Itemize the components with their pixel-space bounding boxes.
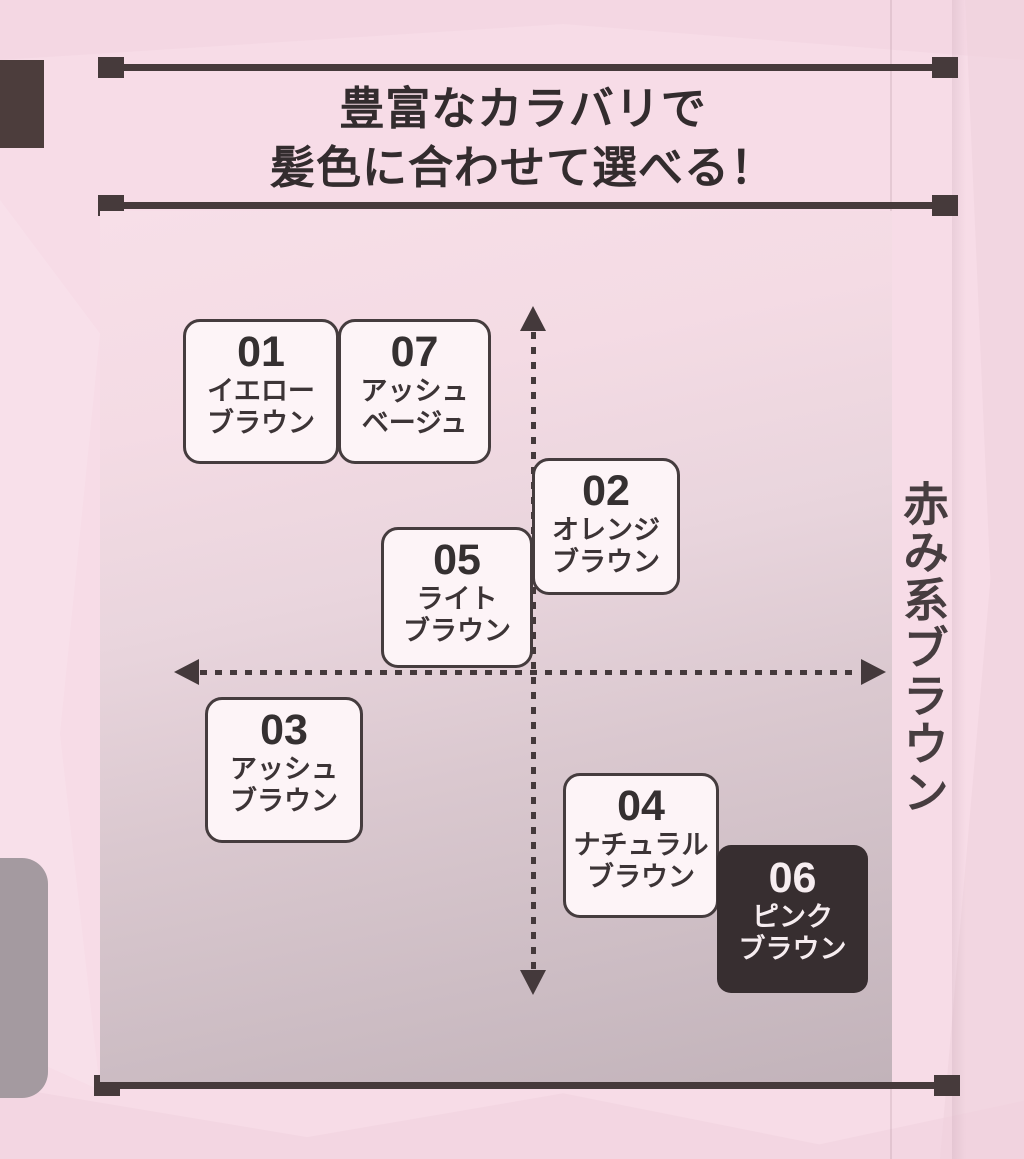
color-name-line: ベージュ	[341, 408, 488, 440]
color-name-line: オレンジ	[535, 515, 677, 547]
color-box-06-pink-brown-highlighted: 06 ピンク ブラウン	[717, 845, 868, 993]
color-name-line: ブラウン	[208, 786, 360, 818]
arrow-right-icon	[861, 659, 886, 685]
arrow-left-icon	[174, 659, 199, 685]
color-number: 02	[535, 468, 677, 515]
color-box-03-ash-brown: 03 アッシュ ブラウン	[205, 697, 363, 843]
title-line-1: 豊富なカラバリで	[339, 83, 707, 134]
arrow-down-icon	[520, 970, 546, 995]
title-rule-bottom	[110, 202, 946, 209]
print-side-block	[0, 858, 48, 1098]
x-axis-dotted-line	[200, 670, 860, 675]
color-number: 03	[208, 707, 360, 754]
color-name-line: アッシュ	[208, 754, 360, 786]
decor-facet	[0, 0, 1024, 60]
color-name-line: アッシュ	[341, 376, 488, 408]
title-line-2: 髪色に合わせて選べる！	[270, 142, 776, 193]
color-name-line: ブラウン	[535, 547, 677, 579]
color-number: 05	[384, 537, 530, 584]
color-name-line: ブラウン	[186, 408, 336, 440]
color-box-07-ash-beige: 07 アッシュ ベージュ	[338, 319, 491, 464]
color-box-01-yellow-brown: 01 イエロー ブラウン	[183, 319, 339, 464]
color-box-02-orange-brown: 02 オレンジ ブラウン	[532, 458, 680, 595]
print-corner-block	[0, 60, 44, 148]
color-number: 04	[566, 783, 716, 830]
color-number: 06	[717, 855, 868, 902]
page-title: 豊富なカラバリで 髪色に合わせて選べる！	[100, 80, 946, 197]
arrow-up-icon	[520, 306, 546, 331]
color-box-05-light-brown: 05 ライト ブラウン	[381, 527, 533, 668]
color-name-line: ブラウン	[717, 934, 868, 966]
color-name-line: ブラウン	[566, 862, 716, 894]
color-name-line: ライト	[384, 584, 530, 616]
axis-label-red-brown: 赤み系ブラウン	[890, 480, 956, 825]
color-name-line: イエロー	[186, 376, 336, 408]
color-name-line: ピンク	[717, 902, 868, 934]
color-name-line: ブラウン	[384, 616, 530, 648]
color-number: 07	[341, 329, 488, 376]
decor-facet	[0, 1086, 1024, 1159]
bottom-rule	[106, 1082, 948, 1089]
color-number: 01	[186, 329, 336, 376]
color-box-04-natural-brown: 04 ナチュラル ブラウン	[563, 773, 719, 918]
title-rule-top	[110, 64, 946, 71]
color-name-line: ナチュラル	[566, 830, 716, 862]
